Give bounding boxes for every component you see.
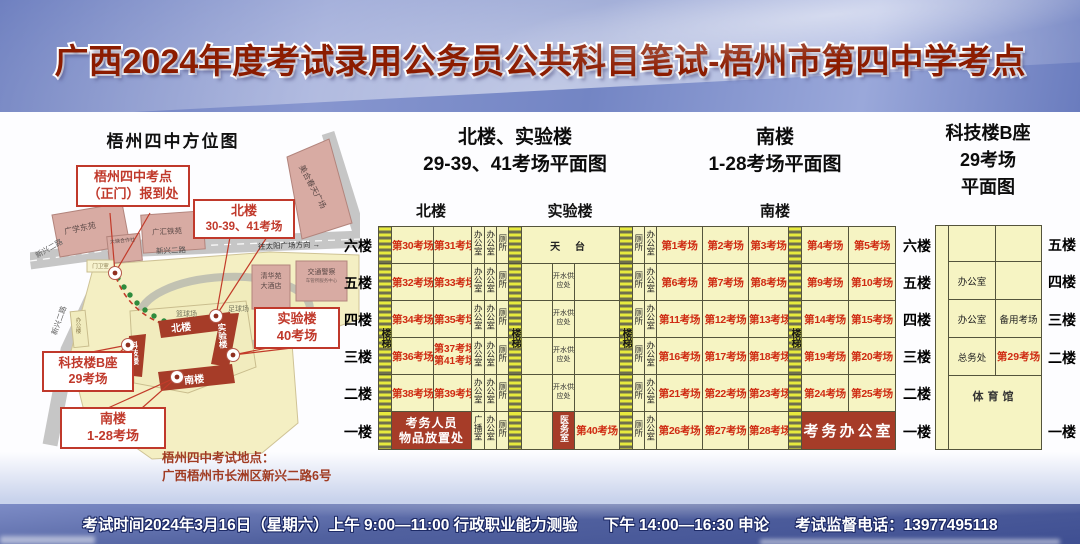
stairs-label: 楼梯 [619,316,632,360]
header-banner: 广西2024年度考试录用公务员公共科目笔试-梧州市第四中学考点 [0,0,1080,112]
toilet-cell: 厕所 [497,301,509,338]
plan-title-tech: 科技楼B座 29考场 平面图 [926,120,1050,201]
room-cell: 第28考场 [749,412,789,450]
exam-address-text: 广西梧州市长洲区新兴二路6号 [162,467,331,485]
office-cell: 办公室 [645,301,657,338]
toilet-cell: 厕所 [497,412,509,450]
water-cell: 开水供应处 [553,375,575,412]
tech-row-4: 办公室 [936,262,1042,300]
office-cell: 办公室 [472,338,485,375]
room-cell: 第18考场 [749,338,789,375]
tech-row-1: 体育馆 [936,376,1042,450]
floor-label-left-5: 五楼 [340,273,376,293]
room-cell: 第9考场 [802,264,849,301]
toilet-cell: 厕所 [497,264,509,301]
room-cell: 第16考场 [657,338,703,375]
label-qinghua: 清华苑 大酒店 [252,271,290,291]
room-cell: 第11考场 [657,301,703,338]
callout-tech: 科技楼B座 29考场 [42,351,134,392]
stairs-label: 楼梯 [788,316,801,360]
stairs-cell [509,227,522,264]
stairs-cell [379,375,392,412]
label-police-name: 交通警察 [308,269,336,276]
office-cell: 办公室 [645,412,657,450]
room-cell: 第13考场 [749,301,789,338]
office-cell: 办公室 [485,412,497,450]
room-cell: 第21考场 [657,375,703,412]
toilet-cell: 厕所 [633,227,645,264]
stairs-cell [509,264,522,301]
section-label-north: 北楼 [386,200,476,221]
office-cell: 办公室 [472,301,485,338]
room-cell: 第8考场 [749,264,789,301]
callout-north: 北楼 30-39、41考场 [193,199,295,239]
room40-cell: 第40考场 [575,412,620,450]
water-cell: 开水供应处 [553,301,575,338]
tech-row-2: 总务处 第29考场 [936,338,1042,376]
lab-empty-cell [575,301,620,338]
plan-title-south-line1: 南楼 [665,124,885,151]
callout-lab-line1: 实验楼 [258,311,336,328]
location-map: 梧州四中方位图 广学东苑 大塘合作社 广汇铁苑 美合春天广场 清华苑 大酒店 交… [30,115,360,507]
toilet-cell: 厕所 [633,412,645,450]
stairs-cell [620,227,633,264]
tech-building-table: 办公室 办公室 备用考场 总务处 第29考场 体育馆 [935,225,1042,450]
callout-lab: 实验楼 40考场 [254,307,340,349]
room-cell: 第7考场 [703,264,749,301]
plan-title-north-lab-line1: 北楼、实验楼 [370,124,660,151]
room-cell: 第27考场 [703,412,749,450]
room-cell: 第25考场 [849,375,896,412]
room-cell: 第33考场 [434,264,472,301]
cutoff-watermark-left [0,536,95,544]
office-cell: 办公室 [949,262,996,300]
exam-address-title: 梧州四中考试地点： [162,449,331,467]
stairs-cell [379,264,392,301]
room-cell: 第19考场 [802,338,849,375]
broadcast-cell: 广播室 [472,412,485,450]
toilet-cell: 厕所 [497,338,509,375]
plan-title-south-line2: 1-28考场平面图 [665,151,885,178]
floor-label-left-6: 六楼 [340,236,376,256]
callout-tech-line2: 29考场 [46,371,130,387]
plan-title-tech-line3: 平面图 [926,174,1050,201]
toilet-cell: 厕所 [497,375,509,412]
room-cell: 第3考场 [749,227,789,264]
affairs-cell: 总务处 [949,338,996,376]
plan-title-north-lab: 北楼、实验楼 29-39、41考场平面图 [370,124,660,178]
stairs-cell [379,412,392,450]
office-cell: 办公室 [472,375,485,412]
office-cell: 办公室 [645,338,657,375]
footer-banner: 考试时间2024年3月16日（星期六）上午 9:00—11:00 行政职业能力测… [0,504,1080,544]
room-cell-double: 第37考场 第41考场 [434,338,472,375]
office-cell: 办公室 [472,264,485,301]
tech-empty-cell [996,226,1042,262]
room-cell: 第24考场 [802,375,849,412]
office-cell: 办公室 [485,375,497,412]
stairs-label: 楼梯 [378,316,391,360]
office-cell: 办公室 [645,227,657,264]
room-cell: 第5考场 [849,227,896,264]
stairs-cell [789,264,802,301]
footer-phone: 考试监督电话：13977495118 [795,513,997,535]
floor-label-mid-3: 三楼 [899,347,935,367]
floor-row-1: 考务人员 物品放置处 广播室 办公室 厕所 医务室 第40考场 厕所 办公室 第… [379,412,896,450]
room-cell: 第15考场 [849,301,896,338]
deposit-cell: 考务人员 物品放置处 [392,412,472,450]
tech-empty-cell [996,262,1042,300]
label-guanghui: 广汇铁苑 [152,225,183,238]
office-cell: 办公室 [949,300,996,338]
callout-gate: 梧州四中考点 （正门）报到处 [76,165,190,207]
callout-tech-line1: 科技楼B座 [46,355,130,371]
callout-south-line2: 1-28考场 [64,428,162,445]
cutoff-watermark-right [760,539,1060,544]
label-football: 足球场 [228,304,249,314]
lab-empty-cell [575,338,620,375]
room-cell: 第1考场 [657,227,703,264]
room-cell: 第14考场 [802,301,849,338]
callout-gate-line2: （正门）报到处 [80,186,186,203]
floor-label-left-2: 二楼 [340,384,376,404]
floor-row-3: 第36考场 第37考场 第41考场 办公室 办公室 厕所 开水供应处 厕所 办公… [379,338,896,375]
floor-label-mid-4: 四楼 [899,310,935,330]
plan-title-tech-line2: 29考场 [926,147,1050,174]
floor-label-tech-3: 三楼 [1044,310,1080,330]
rooftop-cell: 天 台 [522,227,620,264]
poster-title: 广西2024年度考试录用公务员公共科目笔试-梧州市第四中学考点 [0,34,1080,83]
exam-office-cell: 考务办公室 [802,412,896,450]
stairs-cell [509,375,522,412]
plan-title-south: 南楼 1-28考场平面图 [665,124,885,178]
room-cell: 第26考场 [657,412,703,450]
water-cell: 开水供应处 [553,338,575,375]
medical-cell: 医务室 [553,412,575,450]
room-cell: 第4考场 [802,227,849,264]
label-building-north: 北楼 [170,318,192,335]
toilet-cell: 厕所 [633,264,645,301]
lab-empty-cell [522,338,553,375]
lab-empty-cell [575,264,620,301]
room-cell: 第30考场 [392,227,434,264]
floor-label-mid-6: 六楼 [899,236,935,256]
gym-cell: 体育馆 [949,376,1042,450]
footer-afternoon: 下午 14:00—16:30 申论 [604,513,769,535]
lab-empty-cell [522,412,553,450]
stairs-cell [789,227,802,264]
label-road-xinxing-3: 新兴二路 [156,244,187,257]
room-cell: 第2考场 [703,227,749,264]
office-cell: 办公室 [485,301,497,338]
office-cell: 办公室 [485,264,497,301]
room-cell: 第32考场 [392,264,434,301]
office-cell: 办公室 [485,338,497,375]
lab-empty-cell [522,301,553,338]
stairs-cell [379,227,392,264]
section-label-south: 南楼 [710,200,840,221]
room-cell: 第6考场 [657,264,703,301]
room-cell: 第36考场 [392,338,434,375]
office-cell: 办公室 [485,227,497,264]
footer-text: 考试时间2024年3月16日（星期六）上午 9:00—11:00 行政职业能力测… [0,504,1080,535]
callout-north-line2: 30-39、41考场 [197,220,291,235]
callout-gate-line1: 梧州四中考点 [80,169,186,186]
tech-empty-cell [949,226,996,262]
room-cell: 第35考场 [434,301,472,338]
label-police-sub: 车管所服务中心 [306,278,338,283]
section-label-lab: 实验楼 [516,200,624,221]
exam-site-poster: 广西2024年度考试录用公务员公共科目笔试-梧州市第四中学考点 [0,0,1080,544]
floor-label-mid-5: 五楼 [899,273,935,293]
floor-label-left-1: 一楼 [340,422,376,442]
room-cell: 第39考场 [434,375,472,412]
stairs-label: 楼梯 [508,316,521,360]
tech-row-5 [936,226,1042,262]
label-road-direction: 往太阳广场方向 → [258,239,320,252]
floor-label-tech-5: 五楼 [1044,235,1080,255]
lab-empty-cell [522,264,553,301]
floor-row-4: 第34考场 第35考场 办公室 办公室 厕所 开水供应处 厕所 办公室 第11考… [379,301,896,338]
floor-row-5: 第32考场 第33考场 办公室 办公室 厕所 开水供应处 厕所 办公室 第6考场… [379,264,896,301]
callout-south: 南楼 1-28考场 [60,407,166,449]
room-cell: 第31考场 [434,227,472,264]
label-building-south: 南楼 [183,370,204,387]
lab-empty-cell [522,375,553,412]
floor-label-left-3: 三楼 [340,347,376,367]
backup-room-cell: 备用考场 [996,300,1042,338]
floor-label-tech-1: 一楼 [1044,422,1080,442]
room-cell: 第10考场 [849,264,896,301]
toilet-cell: 厕所 [497,227,509,264]
toilet-cell: 厕所 [633,338,645,375]
room29-cell: 第29考场 [996,338,1042,376]
label-building-lab: 实验楼 [217,323,227,349]
label-qinghua-line2: 大酒店 [261,283,282,290]
room-cell: 第23考场 [749,375,789,412]
callout-north-line1: 北楼 [197,203,291,220]
map-title: 梧州四中方位图 [88,127,258,152]
room-cell: 第34考场 [392,301,434,338]
room-cell: 第22考场 [703,375,749,412]
floorplan-table: 第30考场 第31考场 办公室 办公室 厕所 天 台 厕所 办公室 第1考场 第… [378,226,896,450]
floor-label-left-4: 四楼 [340,310,376,330]
stairs-cell [620,412,633,450]
floor-label-mid-2: 二楼 [899,384,935,404]
label-gatehouse: 门卫室 [87,262,114,270]
office-cell: 办公室 [645,375,657,412]
floor-label-tech-2: 二楼 [1044,348,1080,368]
label-office-building: 办公楼 [74,317,80,334]
water-cell: 开水供应处 [553,264,575,301]
office-cell: 办公室 [645,264,657,301]
room-cell: 第17考场 [703,338,749,375]
lab-empty-cell [575,375,620,412]
floor-label-mid-1: 一楼 [899,422,935,442]
floor-row-2: 第38考场 第39考场 办公室 办公室 厕所 开水供应处 厕所 办公室 第21考… [379,375,896,412]
floor-row-6: 第30考场 第31考场 办公室 办公室 厕所 天 台 厕所 办公室 第1考场 第… [379,227,896,264]
stairs-cell [789,375,802,412]
callout-south-line1: 南楼 [64,411,162,428]
footer-exam-time: 考试时间2024年3月16日（星期六）上午 9:00—11:00 行政职业能力测… [82,513,577,535]
stairs-cell [620,264,633,301]
office-cell: 办公室 [472,227,485,264]
tech-corridor-cell [936,226,949,450]
callout-lab-line2: 40考场 [258,328,336,345]
room-cell: 第12考场 [703,301,749,338]
toilet-cell: 厕所 [633,375,645,412]
tech-row-3: 办公室 备用考场 [936,300,1042,338]
exam-address: 梧州四中考试地点： 广西梧州市长洲区新兴二路6号 [162,449,331,485]
plan-title-tech-line1: 科技楼B座 [926,120,1050,147]
label-qinghua-line1: 清华苑 [261,273,282,280]
plan-title-north-lab-line2: 29-39、41考场平面图 [370,151,660,178]
toilet-cell: 厕所 [633,301,645,338]
room-cell: 第20考场 [849,338,896,375]
room-cell: 第38考场 [392,375,434,412]
stairs-cell [620,375,633,412]
stairs-cell [509,412,522,450]
floor-label-tech-4: 四楼 [1044,272,1080,292]
stairs-cell [789,412,802,450]
